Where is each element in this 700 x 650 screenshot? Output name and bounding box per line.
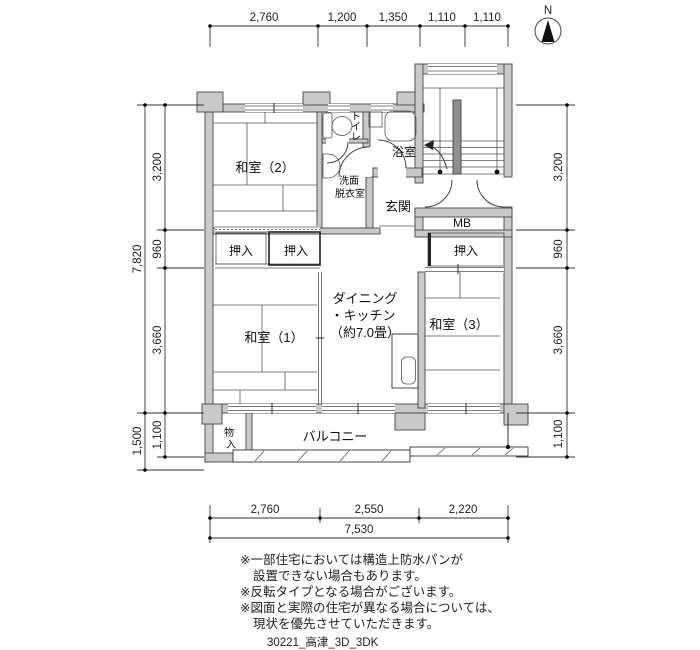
stair-post-right — [495, 170, 500, 175]
window-top-washitsu2 — [245, 103, 303, 113]
balcony-partition — [395, 413, 425, 430]
entry-door-arc-left — [425, 180, 452, 207]
stair-up-arrow — [431, 146, 447, 169]
dim-left-3660: 3,660 — [152, 326, 164, 355]
label-storage-2: 入 — [226, 440, 236, 451]
label-dk-1: ダイニング — [332, 291, 397, 306]
label-closet3: 押入 — [454, 244, 478, 258]
note-line-2: 設置できない場合もあります。 — [253, 568, 427, 583]
dim-right-3200: 3,200 — [553, 153, 565, 182]
label-balcony: バルコニー — [303, 429, 368, 444]
toilet-tank — [323, 113, 332, 138]
footer-code: 30221_高津_3D_3DK — [267, 635, 379, 649]
window-top-toilet — [328, 104, 350, 112]
dim-top-1: 2,760 — [250, 12, 279, 24]
label-dk-2: ・キッチン — [330, 308, 395, 323]
neighbor-railing — [410, 447, 528, 456]
wall-right-upper — [504, 64, 512, 177]
dim-top-2: 1,200 — [328, 12, 357, 24]
note-line-4: ※図面と実際の住宅が異なる場合については、 — [240, 600, 500, 615]
dim-bottom-3: 2,220 — [449, 504, 478, 516]
note-line-3: ※反転タイプとなる場合がございます。 — [240, 584, 461, 599]
label-washitsu3: 和室（3） — [429, 317, 488, 332]
fusuma-closet-washitsu3 — [425, 264, 504, 274]
window-stairwell — [428, 64, 497, 74]
north-arrow: N — [535, 5, 561, 44]
stair-post-left — [438, 170, 443, 175]
pillar-top-left — [197, 92, 223, 112]
dim-left-total: 7,820 — [132, 245, 144, 274]
label-mb: MB — [453, 216, 471, 230]
dim-left-3200: 3,200 — [152, 153, 164, 182]
dim-bottom-2: 2,550 — [355, 504, 384, 516]
wall-washitsu2-right — [317, 112, 322, 233]
bath-boiler — [369, 112, 382, 127]
stairwell — [423, 88, 504, 174]
note-line-1: ※一部住宅においては構造上防水パンが — [240, 552, 463, 567]
stair-banister — [453, 100, 461, 174]
wall-washroom-right — [366, 177, 373, 228]
dim-top-5: 1,110 — [473, 12, 501, 24]
dim-top-3: 1,350 — [379, 12, 408, 24]
room-labels: 和室（2） ト イ レ 浴室 洗面 脱衣室 玄関 MB 押入 押入 押入 ダイニ… — [224, 112, 489, 451]
dim-bottom-total: 7,530 — [345, 524, 374, 536]
label-washitsu1: 和室（1） — [244, 330, 303, 345]
window-bottom-dk — [322, 403, 395, 414]
label-washroom-1: 洗面 — [339, 175, 359, 187]
bathtub — [385, 111, 416, 141]
notes-block: ※一部住宅においては構造上防水パンが 設置できない場合もあります。 ※反転タイプ… — [240, 552, 500, 649]
label-closet2: 押入 — [284, 244, 308, 258]
label-washroom-2: 脱衣室 — [335, 187, 365, 200]
north-label: N — [544, 5, 552, 17]
balcony — [233, 413, 528, 462]
dim-left-1100: 1,100 — [152, 421, 164, 450]
wall-right-lower — [504, 207, 512, 413]
north-arrow-needle — [542, 20, 555, 42]
kitchen-counter — [392, 334, 418, 388]
stair-up-arrowhead — [424, 140, 434, 150]
washbasin — [323, 154, 340, 178]
label-storage-1: 物 — [224, 426, 234, 439]
toilet-bowl — [332, 117, 352, 136]
dim-right-960: 960 — [553, 239, 565, 258]
label-bath: 浴室 — [392, 144, 416, 159]
floor-plan-drawing: N 2,760 1,200 1,350 1,110 1,110 7,820 1,… — [0, 0, 700, 650]
label-closet1: 押入 — [229, 244, 253, 258]
dim-right-1100: 1,100 — [553, 420, 565, 449]
dim-left-1500: 1,500 — [132, 427, 144, 456]
fusuma-dk-washitsu1 — [316, 272, 324, 404]
note-line-5: 現状を優先させていただきます。 — [253, 617, 439, 631]
label-washitsu2: 和室（2） — [235, 160, 294, 175]
window-bottom-washitsu3 — [428, 403, 500, 414]
dim-bottom-1: 2,760 — [251, 504, 280, 516]
entry-door-arc-right — [477, 180, 504, 207]
label-genkan: 玄関 — [385, 199, 411, 214]
window-bottom-washitsu1 — [228, 403, 316, 414]
label-dk-3: （約7.0畳） — [330, 325, 400, 340]
window-top-bath — [371, 104, 393, 112]
floor-plan-page: N 2,760 1,200 1,350 1,110 1,110 7,820 1,… — [0, 0, 700, 650]
pillar-top-mid — [303, 92, 330, 105]
dim-right-3660: 3,660 — [553, 326, 565, 355]
dim-top-4: 1,110 — [428, 12, 456, 24]
dim-left-960: 960 — [152, 239, 164, 258]
wall-dk-washitsu3 — [418, 272, 425, 408]
label-toilet-3: レ — [351, 132, 361, 143]
pillar-bottom-left — [202, 404, 222, 424]
